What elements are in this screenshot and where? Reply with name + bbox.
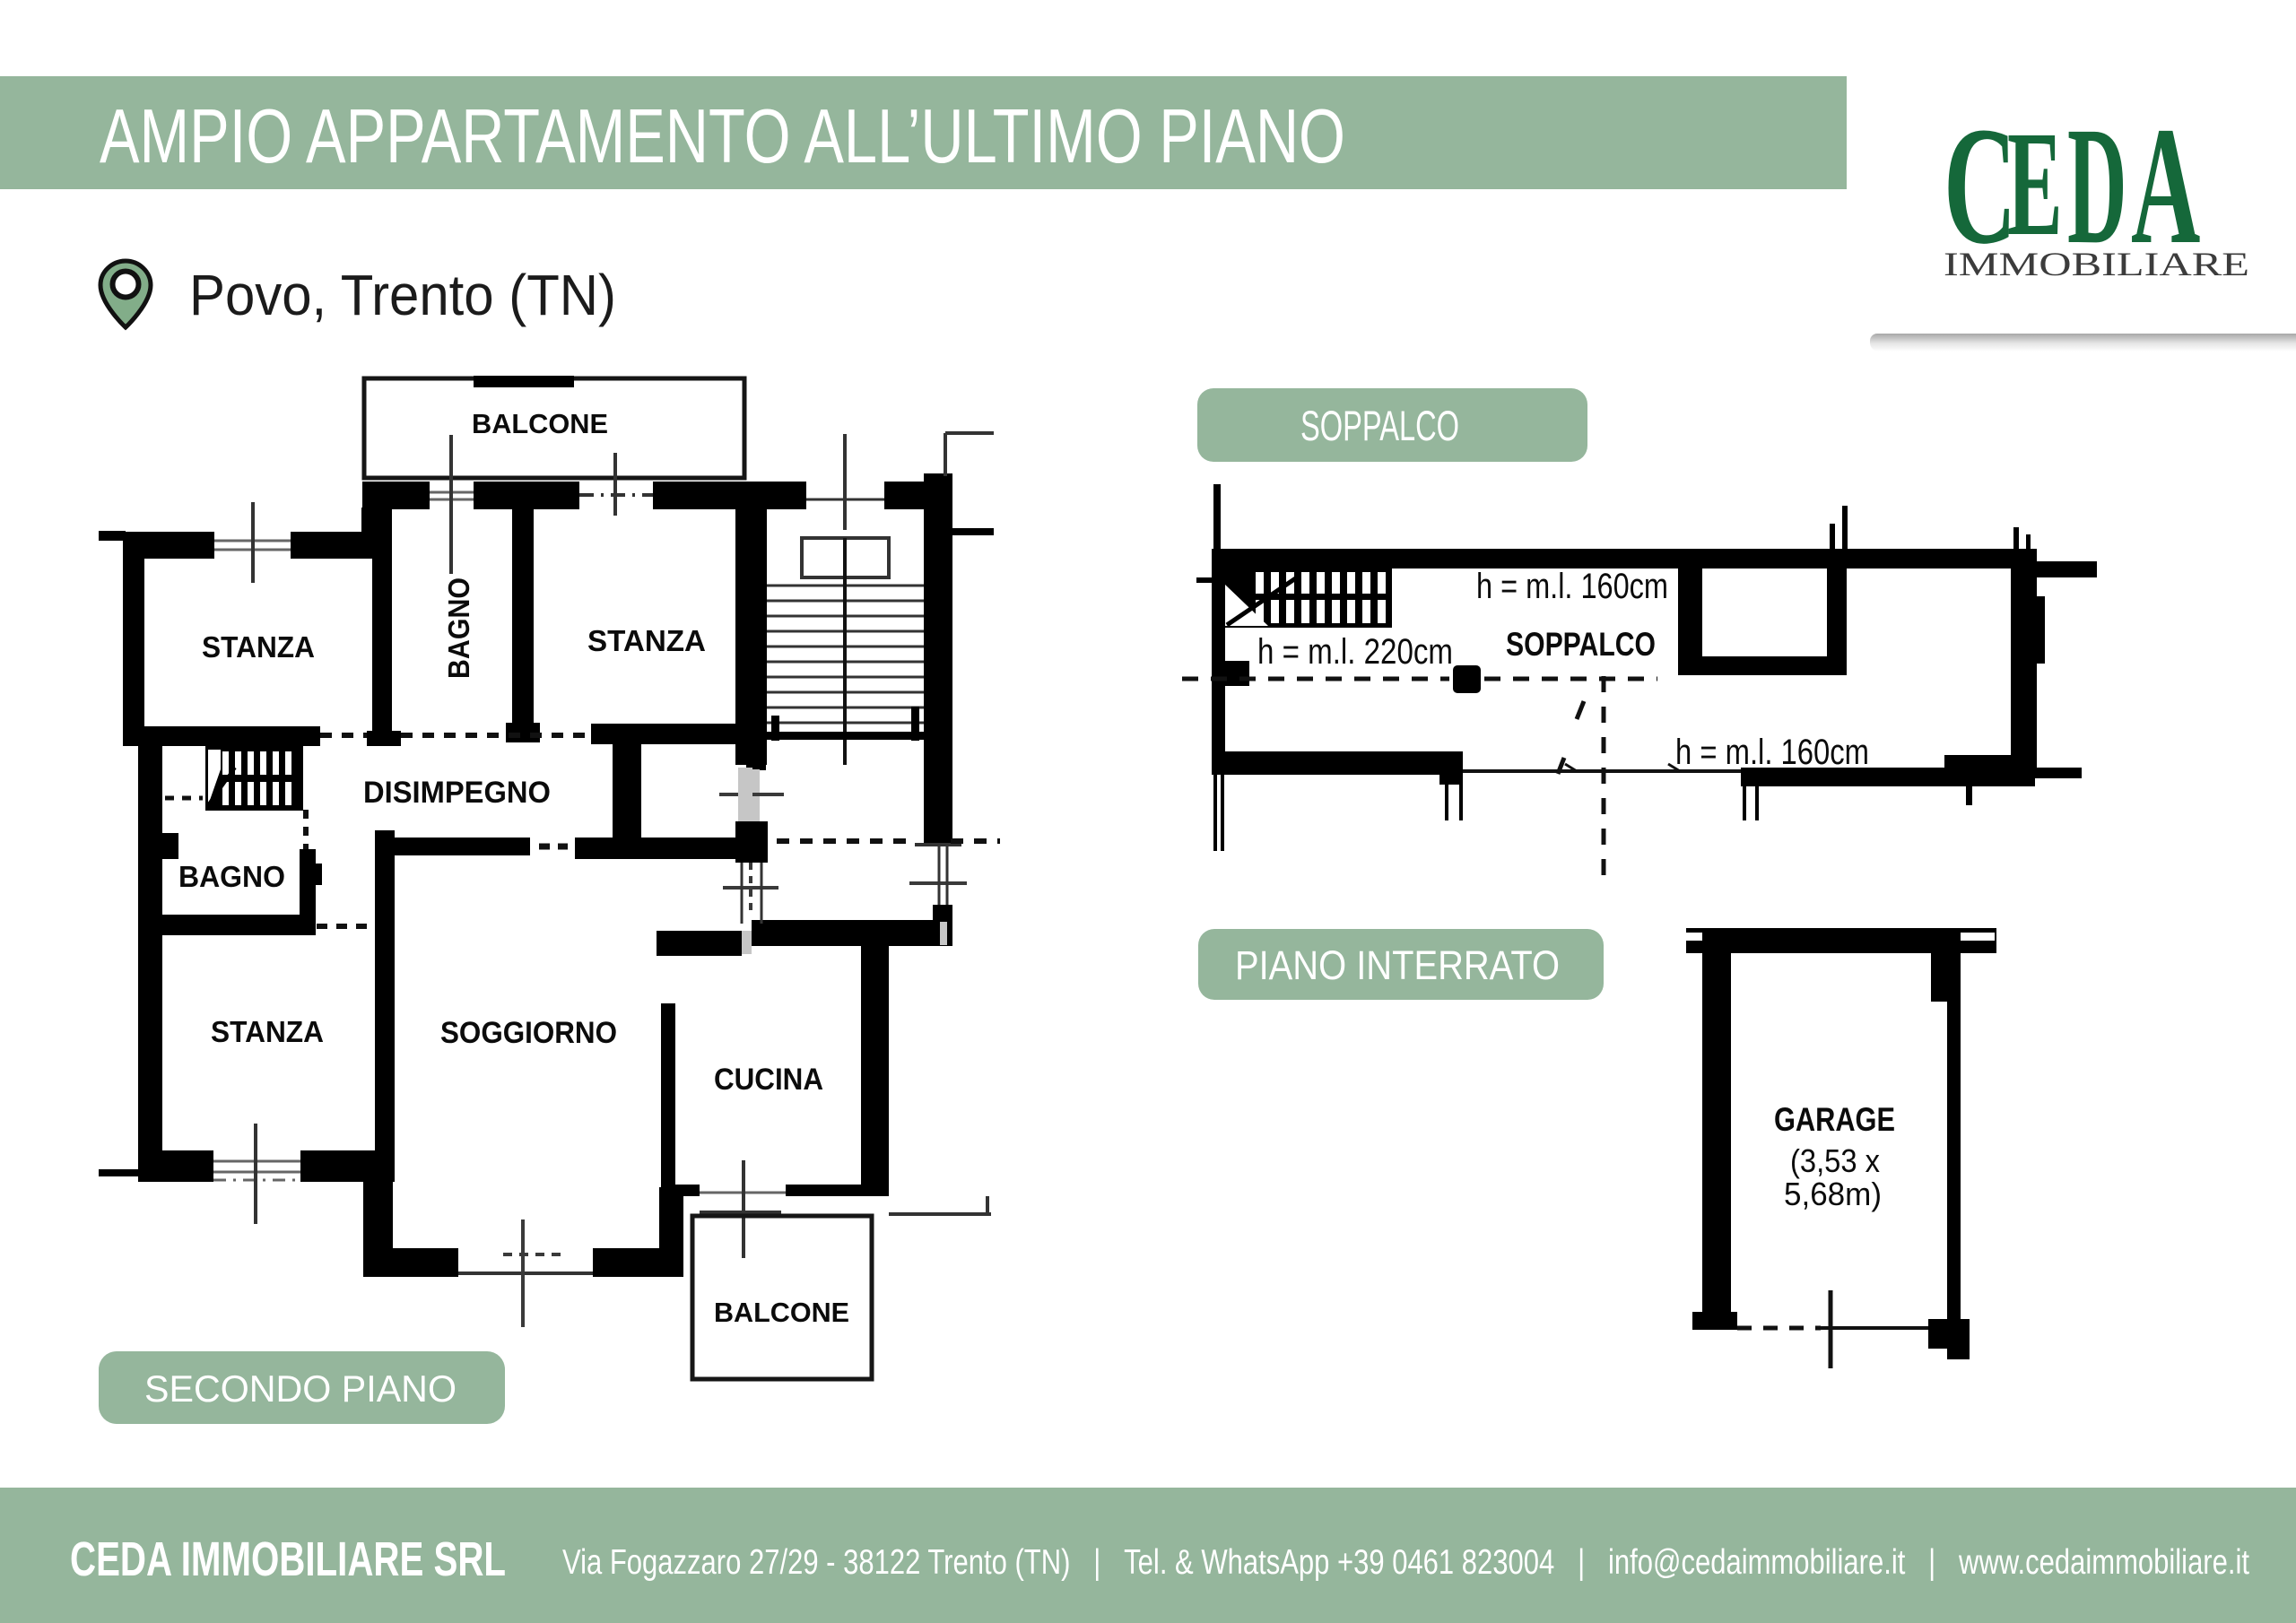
svg-text:SECONDO PIANO: SECONDO PIANO <box>144 1367 457 1410</box>
svg-text:SOPPALCO: SOPPALCO <box>1300 402 1459 449</box>
svg-text:Via Fogazzaro 27/29 - 38122 Tr: Via Fogazzaro 27/29 - 38122 Trento (TN) … <box>562 1543 2249 1582</box>
svg-text:CEDA IMMOBILIARE SRL: CEDA IMMOBILIARE SRL <box>70 1532 506 1586</box>
svg-text:PIANO INTERRATO: PIANO INTERRATO <box>1235 942 1560 988</box>
